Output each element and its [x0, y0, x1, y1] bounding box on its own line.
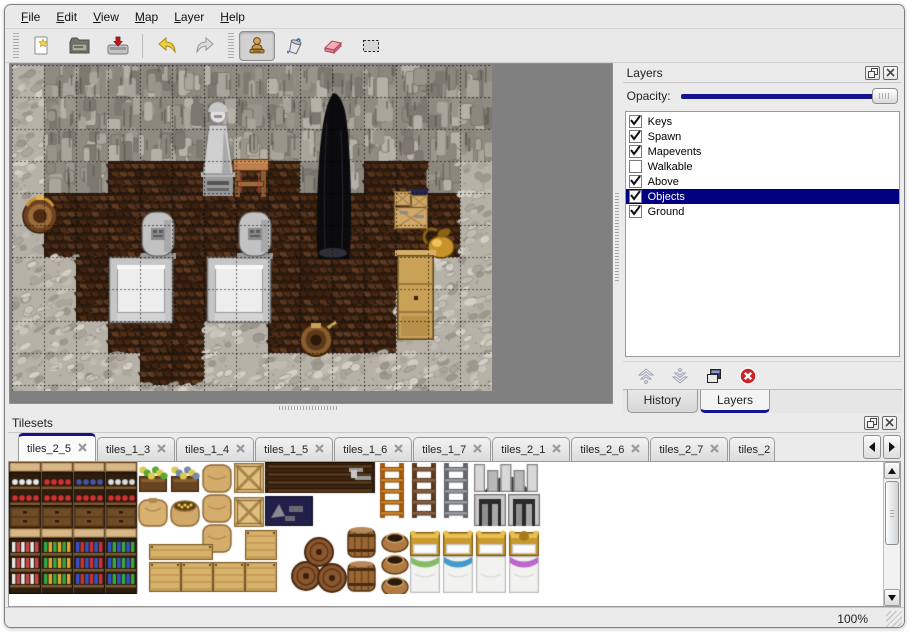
resize-grip[interactable] [886, 611, 902, 627]
tileset-tab-bar: tiles_2_5tiles_1_3tiles_1_4tiles_1_5tile… [8, 433, 901, 461]
tileset-tab-label: tiles_2_5 [27, 443, 71, 455]
tileset-tab-label: tiles_1_7 [422, 444, 466, 456]
layer-name: Objects [648, 191, 685, 203]
menu-edit[interactable]: Edit [48, 7, 85, 27]
close-panel-icon[interactable] [883, 66, 898, 80]
layer-checkbox[interactable] [629, 130, 642, 143]
map-canvas[interactable] [12, 65, 492, 391]
duplicate-layer-button[interactable] [701, 364, 727, 388]
vertical-splitter[interactable] [613, 63, 621, 413]
close-panel-icon[interactable] [882, 416, 897, 430]
tileset-tab-tiles_2_5[interactable]: tiles_2_5 [18, 433, 96, 461]
layer-row-mapevents[interactable]: Mapevents [626, 144, 899, 159]
tilesets-dock-title: Tilesets [12, 416, 861, 430]
menu-view[interactable]: View [85, 7, 127, 27]
layer-checkbox[interactable] [629, 145, 642, 158]
close-tab-icon[interactable] [157, 444, 166, 456]
tileset-tab-label: tiles_1_6 [343, 444, 387, 456]
app-window: FileEditViewMapLayerHelp Layers Opacit [4, 4, 905, 628]
tab-scroll-left-button[interactable] [863, 435, 881, 459]
layer-list: KeysSpawnMapeventsWalkableAboveObjectsGr… [625, 111, 900, 357]
layer-checkbox[interactable] [629, 175, 642, 188]
select-tool-button[interactable] [353, 31, 389, 61]
dock-tab-bar: HistoryLayers [623, 389, 902, 413]
tileset-tab-tiles_2_7[interactable]: tiles_2_7 [650, 437, 728, 461]
tileset-tab-label: tiles_2 [738, 444, 770, 456]
tab-scroll-right-button[interactable] [883, 435, 901, 459]
raise-layer-button[interactable] [633, 364, 659, 388]
layer-name: Keys [648, 116, 672, 128]
layer-name: Mapevents [648, 146, 702, 158]
lower-layer-button[interactable] [667, 364, 693, 388]
tileset-tab-label: tiles_1_3 [106, 444, 150, 456]
delete-layer-button[interactable] [735, 364, 761, 388]
toolbar [5, 29, 904, 63]
menu-layer[interactable]: Layer [166, 7, 212, 27]
layer-row-objects[interactable]: Objects [626, 189, 899, 204]
layer-name: Walkable [648, 161, 693, 173]
menu-bar: FileEditViewMapLayerHelp [5, 5, 904, 29]
tileset-tab-tiles_2_6[interactable]: tiles_2_6 [571, 437, 649, 461]
scroll-down-button[interactable] [884, 589, 900, 606]
layer-row-keys[interactable]: Keys [626, 114, 899, 129]
tileset-tab-tiles_2_1[interactable]: tiles_2_1 [492, 437, 570, 461]
layer-name: Ground [648, 206, 685, 218]
layers-dock: Layers Opacity: KeysSpawnMapeventsWalkab… [621, 63, 904, 413]
tileset-tab-tiles_1_7[interactable]: tiles_1_7 [413, 437, 491, 461]
layers-dock-title: Layers [627, 66, 862, 80]
close-tab-icon[interactable] [315, 444, 324, 456]
layer-name: Spawn [648, 131, 682, 143]
dock-tab-history[interactable]: History [627, 390, 698, 413]
opacity-slider[interactable] [679, 87, 898, 105]
save-file-button[interactable] [100, 31, 136, 61]
fill-tool-button[interactable] [277, 31, 313, 61]
layer-row-spawn[interactable]: Spawn [626, 129, 899, 144]
tileset-tab-tiles_1_4[interactable]: tiles_1_4 [176, 437, 254, 461]
tileset-tab-label: tiles_2_1 [501, 444, 545, 456]
tileset-scrollbar[interactable] [883, 462, 900, 606]
redo-button[interactable] [187, 31, 223, 61]
tileset-tab-label: tiles_1_4 [185, 444, 229, 456]
map-viewport [9, 63, 613, 404]
tileset-canvas[interactable] [9, 462, 867, 594]
layer-checkbox[interactable] [629, 205, 642, 218]
open-file-button[interactable] [62, 31, 98, 61]
menu-help[interactable]: Help [212, 7, 253, 27]
status-bar: 100% [5, 607, 904, 628]
tileset-tab-label: tiles_2_7 [659, 444, 703, 456]
opacity-slider-handle[interactable] [872, 88, 898, 104]
scroll-up-button[interactable] [884, 462, 900, 479]
layer-row-walkable[interactable]: Walkable [626, 159, 899, 174]
menu-file[interactable]: File [13, 7, 48, 27]
layer-buttons [623, 361, 902, 389]
close-tab-icon[interactable] [78, 443, 87, 455]
layer-row-above[interactable]: Above [626, 174, 899, 189]
toolbar-drag-handle[interactable] [13, 33, 19, 59]
undo-button[interactable] [149, 31, 185, 61]
close-tab-icon[interactable] [394, 444, 403, 456]
layer-checkbox[interactable] [629, 115, 642, 128]
tileset-tab-label: tiles_2_6 [580, 444, 624, 456]
scrollbar-thumb[interactable] [885, 481, 899, 545]
opacity-label: Opacity: [627, 89, 671, 103]
layer-name: Above [648, 176, 679, 188]
toolbar-drag-handle[interactable] [228, 33, 234, 59]
tileset-tab-tiles_2[interactable]: tiles_2 [729, 437, 775, 461]
layers-dock-header: Layers [623, 63, 902, 83]
tilesets-dock: Tilesets tiles_2_5tiles_1_3tiles_1_4tile… [5, 413, 904, 607]
dock-tab-layers[interactable]: Layers [700, 390, 770, 413]
tileset-tab-label: tiles_1_5 [264, 444, 308, 456]
horizontal-splitter[interactable] [5, 404, 613, 412]
eraser-tool-button[interactable] [315, 31, 351, 61]
layer-row-ground[interactable]: Ground [626, 204, 899, 219]
menu-map[interactable]: Map [127, 7, 166, 27]
new-file-button[interactable] [24, 31, 60, 61]
tileset-tab-tiles_1_6[interactable]: tiles_1_6 [334, 437, 412, 461]
toolbar-separator [142, 34, 143, 58]
close-tab-icon[interactable] [710, 444, 719, 456]
close-tab-icon[interactable] [473, 444, 482, 456]
layer-checkbox[interactable] [629, 190, 642, 203]
stamp-tool-button[interactable] [239, 31, 275, 61]
opacity-slider-track[interactable] [681, 94, 896, 99]
float-panel-icon[interactable] [865, 66, 880, 80]
layer-checkbox[interactable] [629, 160, 642, 173]
float-panel-icon[interactable] [864, 416, 879, 430]
close-tab-icon[interactable] [631, 444, 640, 456]
close-tab-icon[interactable] [552, 444, 561, 456]
tileset-tab-tiles_1_3[interactable]: tiles_1_3 [97, 437, 175, 461]
tileset-tab-tiles_1_5[interactable]: tiles_1_5 [255, 437, 333, 461]
tilesets-dock-header: Tilesets [8, 413, 901, 433]
close-tab-icon[interactable] [236, 444, 245, 456]
scrollbar-track[interactable] [884, 479, 900, 589]
zoom-level: 100% [837, 612, 868, 626]
